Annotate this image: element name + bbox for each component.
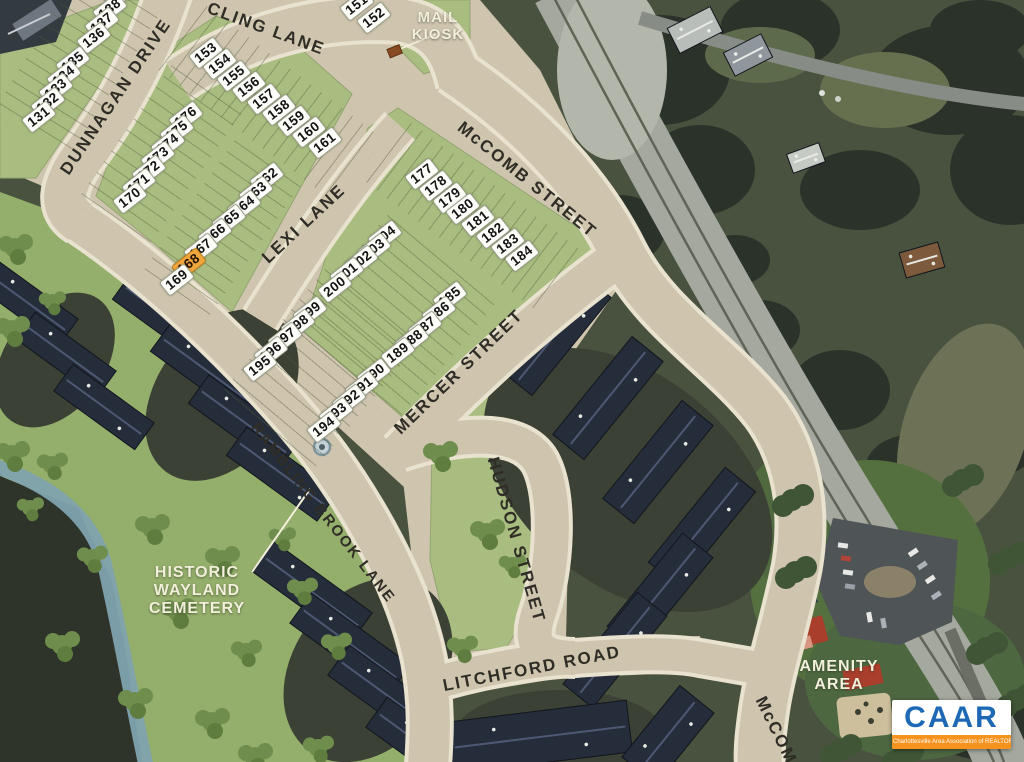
site-plan-map: 1391381371361351341331321311511521531541… [0, 0, 1024, 762]
caar-logo: CAAR Charlottesville Area Association of… [892, 700, 1011, 749]
utility-marker-icon [314, 439, 330, 455]
caar-logo-tagline: Charlottesville Area Association of REAL… [892, 735, 1011, 749]
map-artwork [0, 0, 1024, 762]
caar-logo-text: CAAR [892, 700, 1011, 735]
